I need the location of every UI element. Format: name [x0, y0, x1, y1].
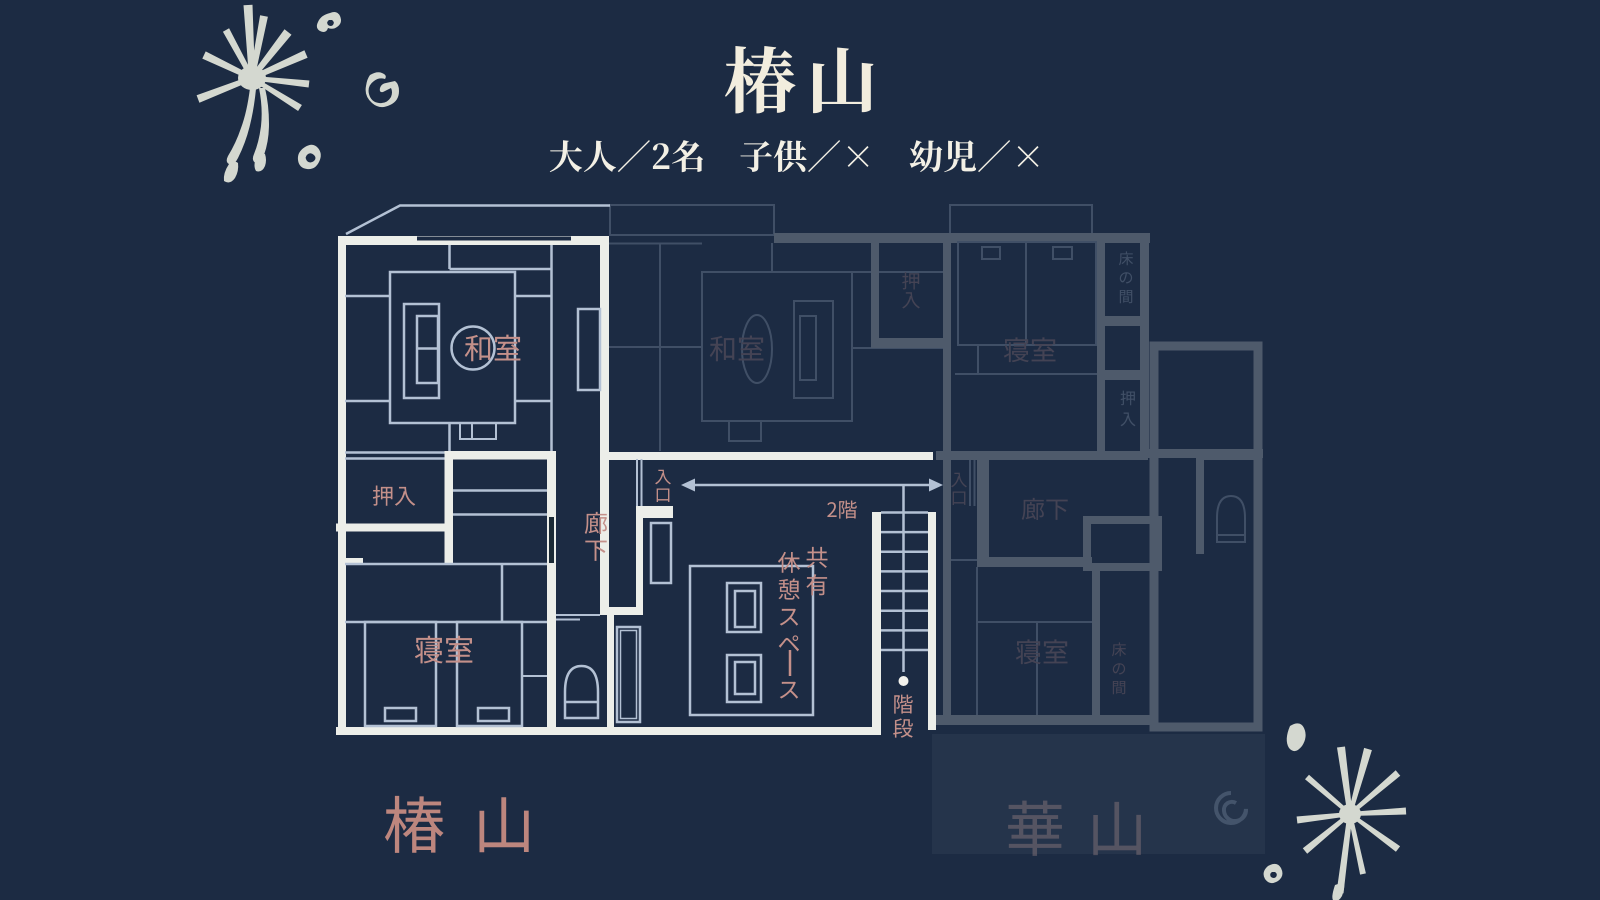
svg-text:大人／2名 子供／× 幼児／×: 大人／2名 子供／× 幼児／×	[549, 130, 1045, 179]
svg-text:椿山: 椿山	[724, 24, 888, 128]
svg-text:下: 下	[584, 531, 608, 566]
svg-text:華山: 華山	[1005, 782, 1169, 869]
svg-text:床: 床	[1118, 248, 1133, 269]
svg-text:間: 間	[1118, 286, 1133, 307]
svg-text:和室: 和室	[464, 326, 522, 368]
svg-text:間: 間	[1111, 677, 1126, 698]
svg-text:椿山: 椿山	[383, 776, 563, 866]
svg-text:廊下: 廊下	[1021, 490, 1069, 525]
svg-text:有: 有	[806, 567, 829, 601]
svg-text:の: の	[1111, 658, 1126, 679]
svg-text:段: 段	[893, 713, 914, 743]
svg-text:寝室: 寝室	[1003, 329, 1057, 368]
svg-text:の: の	[1118, 267, 1133, 288]
svg-text:寝室: 寝室	[1015, 631, 1069, 670]
svg-text:ス: ス	[778, 671, 801, 705]
svg-text:押入: 押入	[372, 479, 416, 511]
svg-text:寝室: 寝室	[414, 626, 474, 670]
svg-text:和室: 和室	[709, 328, 765, 368]
svg-text:2階: 2階	[826, 494, 857, 523]
svg-text:口: 口	[655, 481, 672, 506]
svg-text:床: 床	[1111, 639, 1126, 660]
svg-text:入: 入	[901, 286, 920, 313]
svg-text:入: 入	[1120, 406, 1136, 430]
svg-text:口: 口	[951, 484, 968, 509]
